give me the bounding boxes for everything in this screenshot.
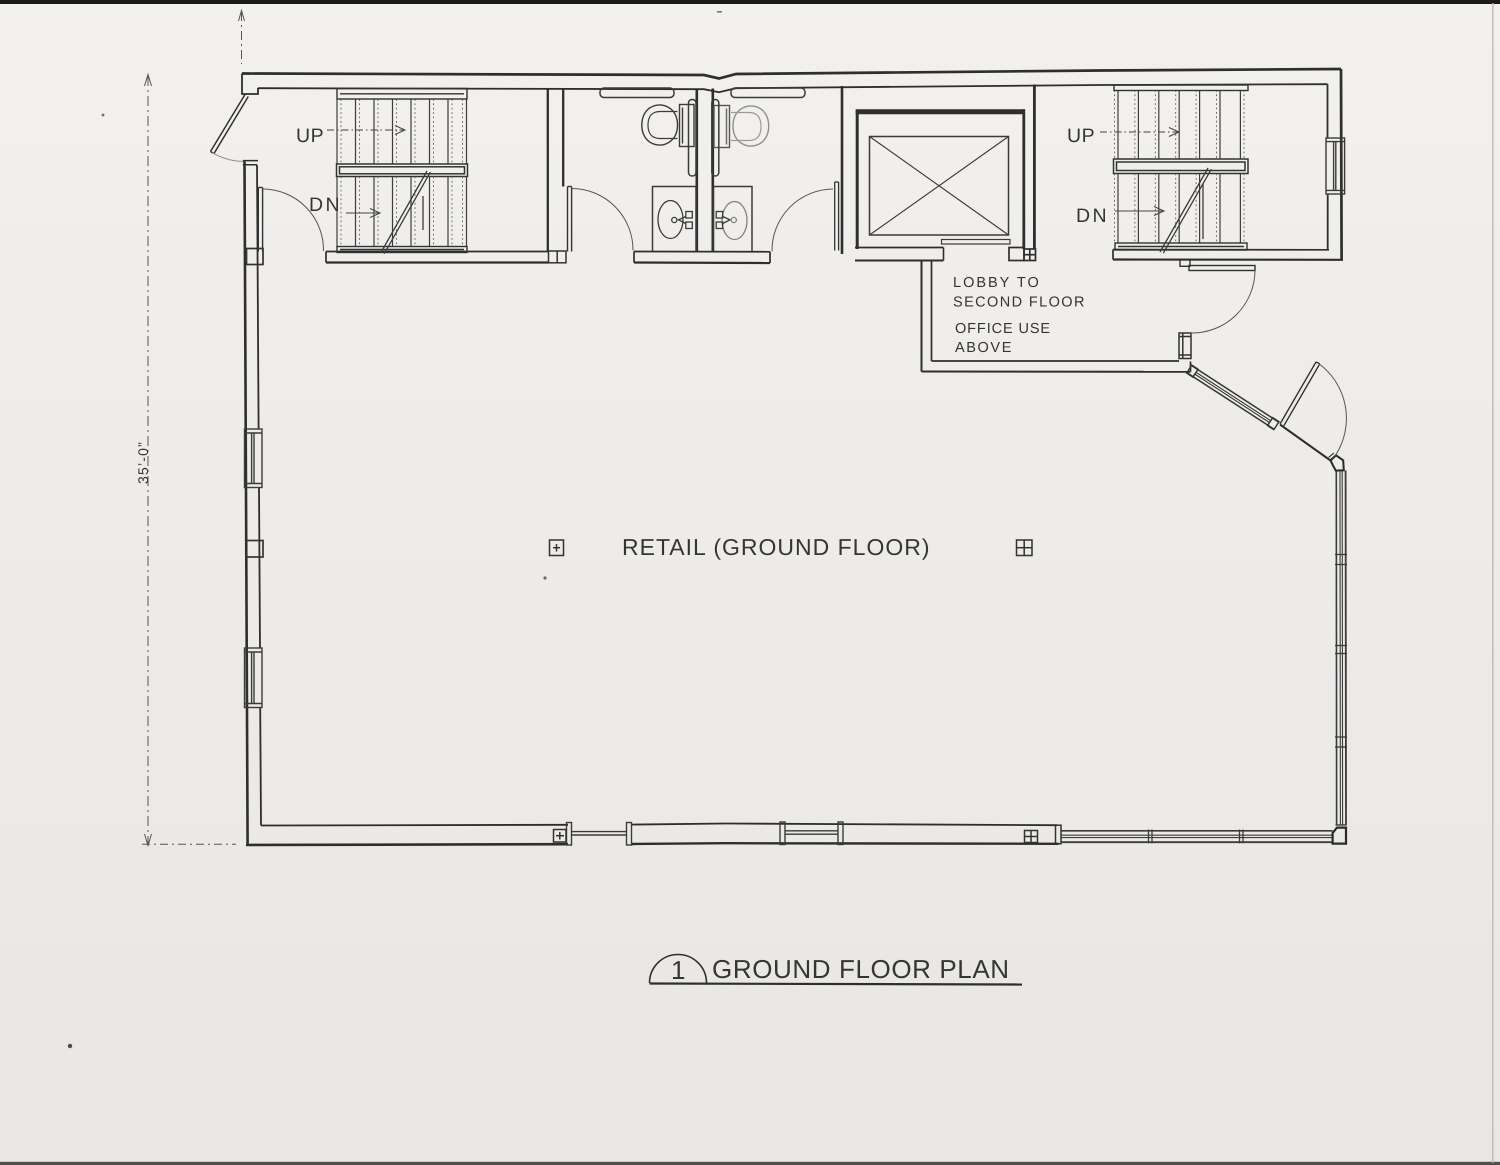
svg-text:UP: UP — [296, 125, 324, 147]
svg-text:UP: UP — [1067, 125, 1095, 147]
svg-text:OFFICE USE: OFFICE USE — [955, 321, 1051, 337]
svg-text:GROUND FLOOR PLAN: GROUND FLOOR PLAN — [712, 954, 1010, 984]
svg-text:DN: DN — [1076, 205, 1109, 227]
svg-text:DN: DN — [309, 194, 342, 216]
svg-text:SECOND FLOOR: SECOND FLOOR — [953, 295, 1086, 311]
svg-text:1: 1 — [671, 955, 689, 985]
svg-text:ABOVE: ABOVE — [955, 340, 1013, 356]
svg-text:RETAIL (GROUND FLOOR): RETAIL (GROUND FLOOR) — [622, 534, 931, 560]
svg-text:35’-0”: 35’-0” — [135, 441, 151, 484]
svg-text:LOBBY TO: LOBBY TO — [953, 275, 1041, 291]
